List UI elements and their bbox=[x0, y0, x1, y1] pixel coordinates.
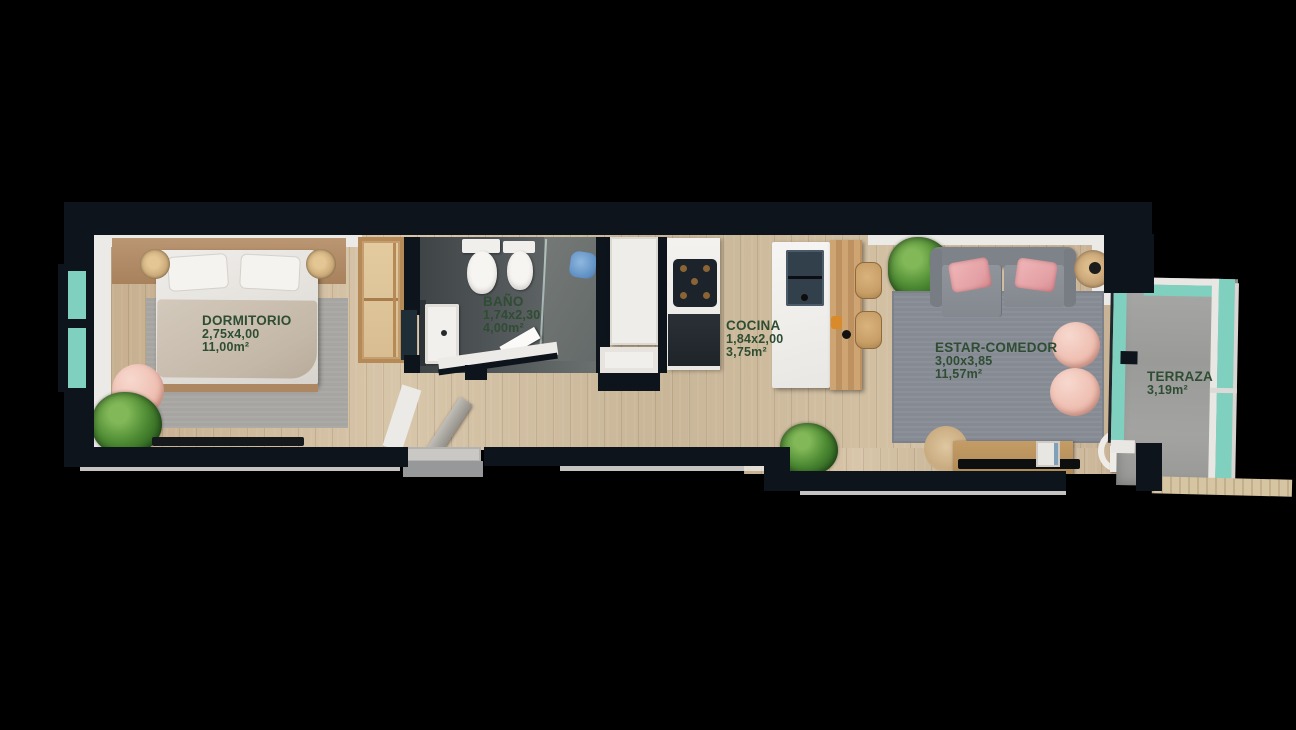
exterior-sill bbox=[80, 467, 400, 471]
room-area: 11,00m² bbox=[202, 341, 292, 354]
terrace-door-jamb bbox=[1120, 351, 1137, 364]
room-name: ESTAR-COMEDOR bbox=[935, 341, 1057, 355]
room-label-terraza: TERRAZA 3,19m² bbox=[1147, 370, 1213, 397]
room-name: DORMITORIO bbox=[202, 314, 292, 328]
room-label-bano: BAÑO 1,74x2,30 4,00m² bbox=[483, 295, 540, 335]
wall-terrace-corner bbox=[1104, 234, 1154, 293]
room-label-dormitorio: DORMITORIO 2,75x4,00 11,00m² bbox=[202, 314, 292, 354]
terrace-door-sill bbox=[1111, 440, 1135, 453]
exterior-sill bbox=[800, 491, 1066, 495]
room-area: 3,19m² bbox=[1147, 384, 1213, 397]
wall-living-terrace-bottom bbox=[1136, 443, 1162, 491]
room-name: COCINA bbox=[726, 319, 783, 333]
terrace bbox=[0, 0, 1296, 730]
terrace-railing-midbar bbox=[1210, 388, 1237, 394]
room-name: TERRAZA bbox=[1147, 370, 1213, 384]
room-area: 4,00m² bbox=[483, 322, 540, 335]
window-frame-protrusion bbox=[58, 264, 67, 392]
wall-bottom-left bbox=[64, 447, 408, 467]
window-mullion bbox=[66, 319, 88, 328]
room-area: 11,57m² bbox=[935, 368, 1057, 381]
wall-top bbox=[64, 202, 1152, 235]
bedroom-window bbox=[68, 271, 86, 388]
room-label-cocina: COCINA 1,84x2,00 3,75m² bbox=[726, 319, 783, 359]
wall-step bbox=[764, 447, 790, 491]
room-name: BAÑO bbox=[483, 295, 540, 309]
room-label-estar-comedor: ESTAR-COMEDOR 3,00x3,85 11,57m² bbox=[935, 341, 1057, 381]
wall-bottom-living bbox=[788, 471, 1066, 491]
exterior-sill bbox=[560, 466, 768, 471]
wall-bottom-middle bbox=[484, 447, 768, 466]
room-area: 3,75m² bbox=[726, 346, 783, 359]
exterior-ledge bbox=[1152, 476, 1292, 496]
floor-plan: DORMITORIO 2,75x4,00 11,00m² BAÑO 1,74x2… bbox=[0, 0, 1296, 730]
